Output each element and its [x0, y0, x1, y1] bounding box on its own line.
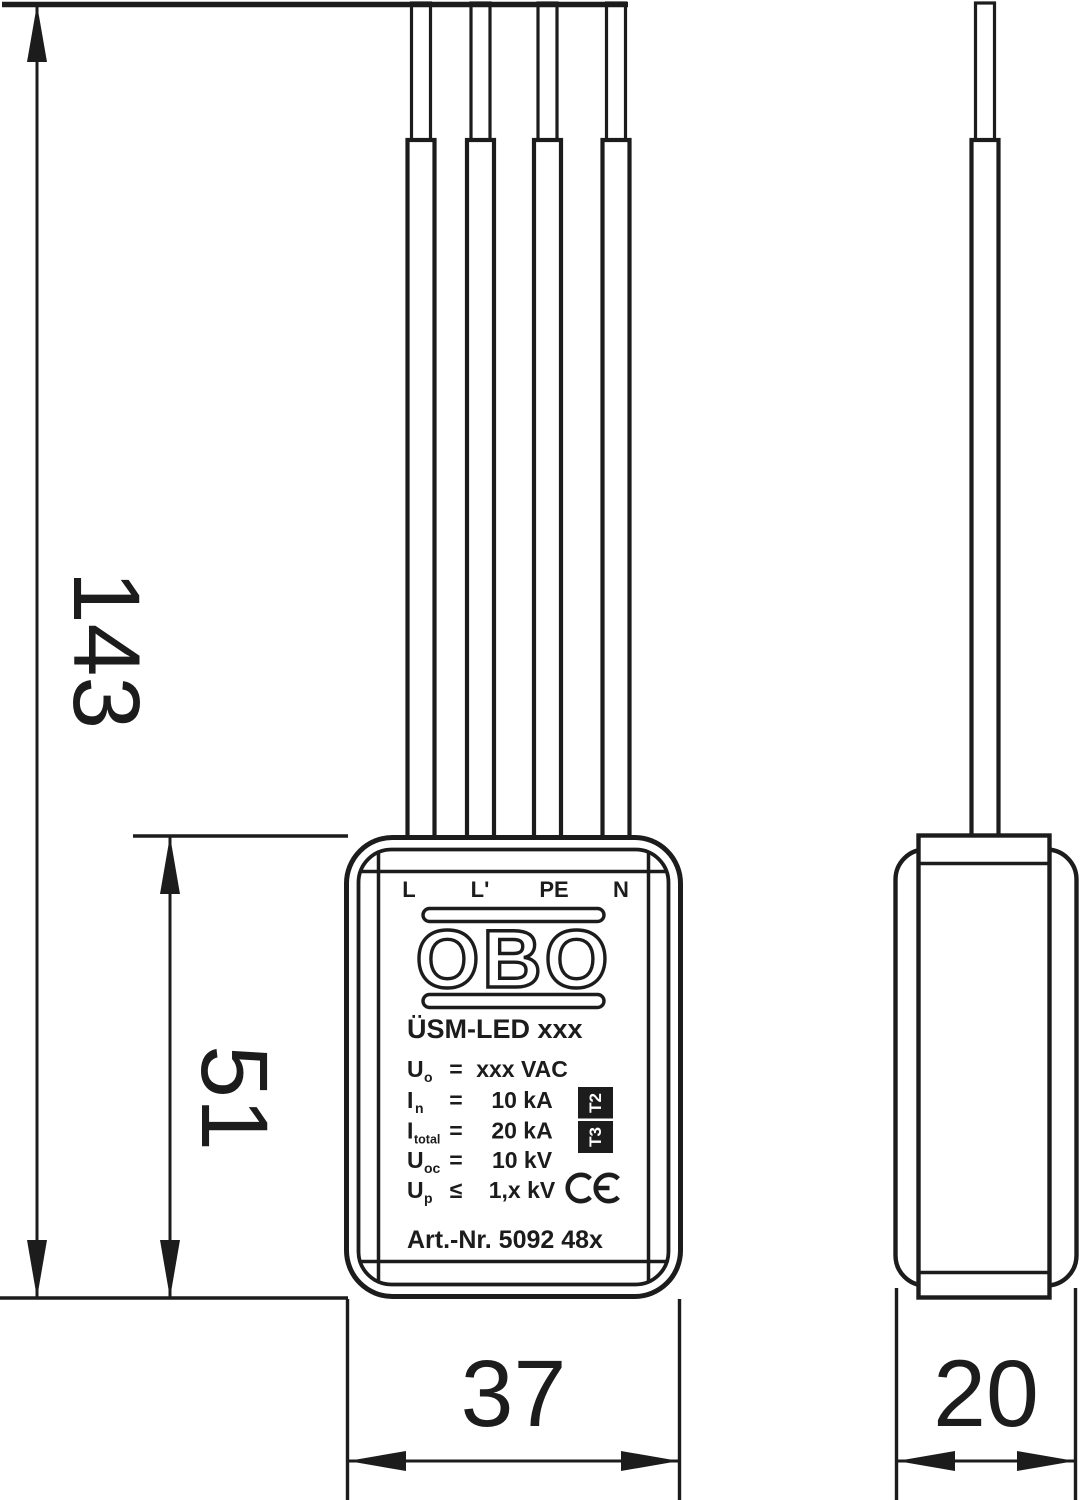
wire-l-stripped-end — [412, 3, 431, 142]
side-wire — [972, 3, 999, 837]
dimension-value-51: 51 — [181, 1045, 287, 1151]
spec-value: xxx VAC — [476, 1056, 568, 1082]
wire-n-insulation — [603, 140, 630, 840]
technical-drawing-canvas: L L' PE N OBO ÜSM-LED xxx U o = xxx VAC … — [0, 0, 1080, 1500]
spec-operator: = — [449, 1056, 462, 1082]
obo-logo: OBO — [416, 909, 612, 1008]
article-number: Art.-Nr. 5092 48x — [407, 1226, 603, 1254]
wire-l-prime — [467, 3, 494, 840]
terminal-label-n: N — [613, 877, 629, 902]
arrowhead-down-143 — [27, 1240, 47, 1298]
wire-pe-insulation — [534, 140, 561, 840]
badge-t3-label: T3 — [586, 1127, 605, 1147]
front-view: L L' PE N OBO ÜSM-LED xxx U o = xxx VAC … — [347, 3, 681, 1297]
wire-l-insulation — [408, 140, 435, 840]
dimension-value-20: 20 — [933, 1341, 1039, 1447]
arrowhead-up-143 — [27, 5, 47, 63]
side-body-slab — [919, 836, 1050, 1298]
terminal-label-l: L — [402, 877, 415, 902]
spec-symbol: U — [407, 1056, 424, 1082]
spec-subscript: n — [415, 1100, 424, 1116]
dimension-value-37: 37 — [461, 1341, 567, 1447]
dimension-value-143: 143 — [53, 571, 159, 730]
badge-t2-label: T2 — [586, 1093, 605, 1113]
arrowhead-right-20 — [1017, 1451, 1075, 1471]
spec-value: 10 kA — [491, 1087, 552, 1113]
spec-value: 1,x kV — [489, 1177, 556, 1203]
spec-subscript: total — [414, 1133, 440, 1147]
wire-n — [603, 3, 630, 840]
arrowhead-left-37 — [348, 1451, 406, 1471]
spec-symbol: I — [407, 1118, 413, 1144]
spec-operator: = — [449, 1087, 462, 1113]
spec-value: 10 kV — [492, 1147, 553, 1173]
arrowhead-right-37 — [621, 1451, 679, 1471]
dimension-body-width: 37 — [348, 1341, 680, 1471]
spec-operator: ≤ — [450, 1177, 463, 1203]
wire-pe-stripped-end — [538, 3, 557, 142]
obo-logo-bottom-bar — [423, 995, 604, 1008]
wire-n-stripped-end — [607, 3, 626, 142]
spec-symbol: I — [407, 1087, 413, 1113]
side-wire-insulation — [972, 140, 999, 837]
wire-l-prime-stripped-end — [471, 3, 490, 142]
wire-l-prime-insulation — [467, 140, 494, 840]
wire-l — [408, 3, 435, 840]
spec-subscript: oc — [424, 1160, 441, 1176]
spec-subscript: o — [424, 1069, 433, 1085]
spec-operator: = — [449, 1118, 462, 1144]
obo-logo-wordmark: OBO — [416, 914, 612, 1005]
spec-subscript: p — [424, 1190, 433, 1206]
terminal-label-l-prime: L' — [471, 877, 490, 902]
spec-operator: = — [449, 1147, 462, 1173]
dimension-body-depth: 20 — [897, 1341, 1076, 1471]
side-view — [896, 3, 1077, 1298]
dimension-drawing-page: L L' PE N OBO ÜSM-LED xxx U o = xxx VAC … — [0, 0, 1080, 1500]
model-designation: ÜSM-LED xxx — [407, 1014, 583, 1044]
dimension-total-height: 143 — [27, 5, 159, 1299]
wire-pe — [534, 3, 561, 840]
arrowhead-down-51 — [160, 1240, 180, 1298]
arrowhead-up-51 — [160, 836, 180, 894]
spec-symbol: U — [407, 1177, 424, 1203]
side-wire-stripped-end — [976, 3, 995, 142]
spec-symbol: U — [407, 1147, 424, 1173]
spec-value: 20 kA — [491, 1118, 552, 1144]
terminal-label-pe: PE — [539, 877, 568, 902]
dimension-body-height: 51 — [160, 836, 287, 1298]
arrowhead-left-20 — [897, 1451, 955, 1471]
